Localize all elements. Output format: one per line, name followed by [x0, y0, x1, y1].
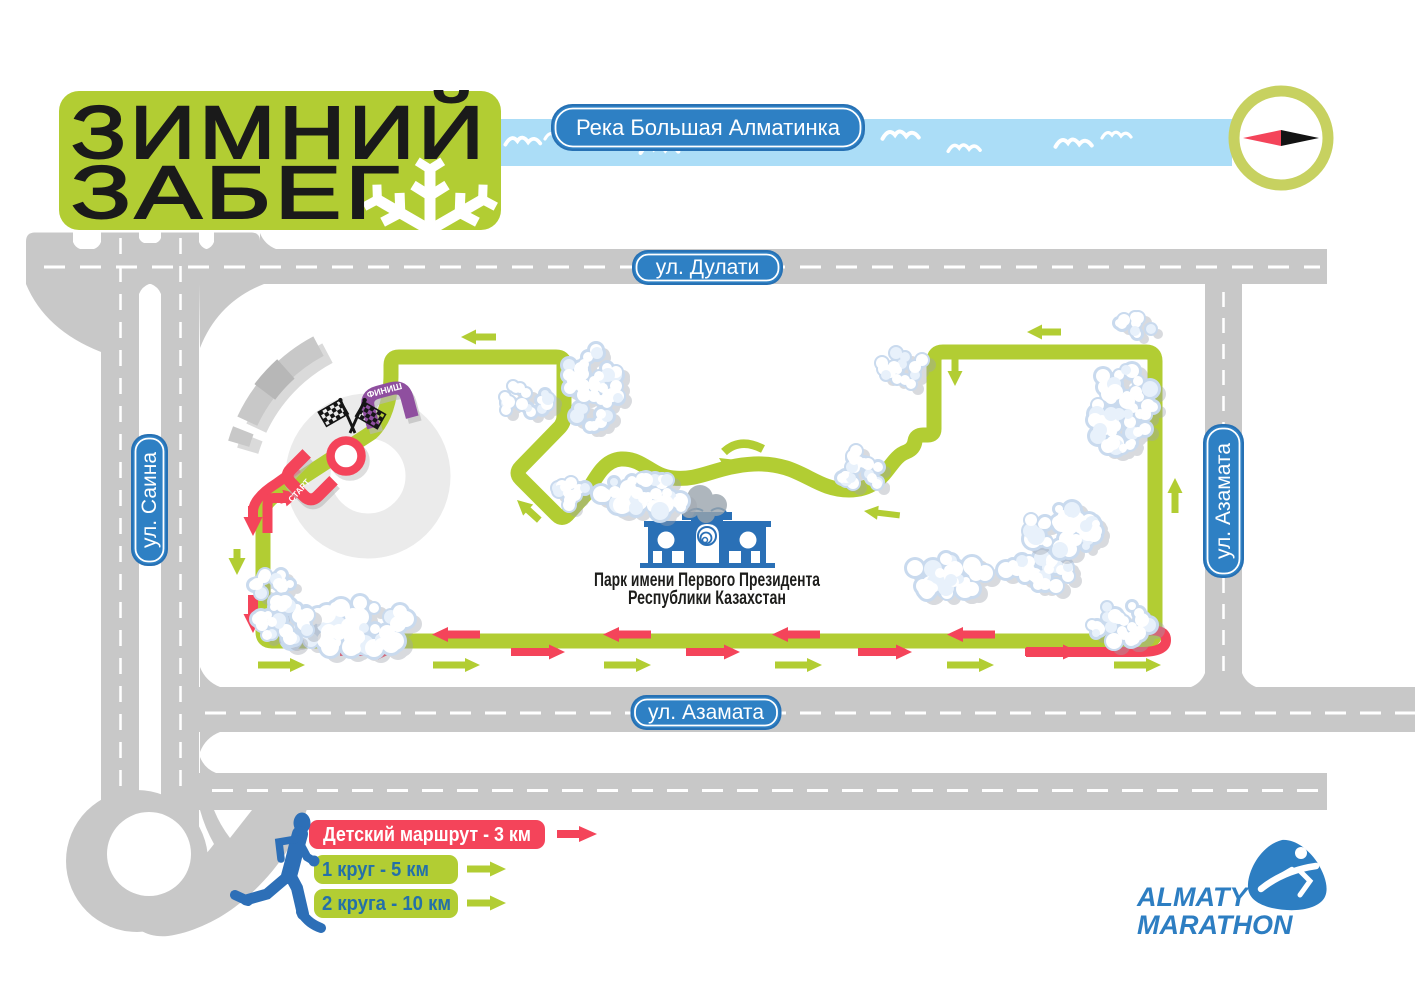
svg-text:Республики Казахстан: Республики Казахстан [628, 588, 786, 609]
svg-text:MARATHON: MARATHON [1137, 910, 1293, 940]
svg-text:2 круга - 10 км: 2 круга - 10 км [322, 893, 451, 915]
svg-text:ЗАБЕГ: ЗАБЕГ [71, 151, 403, 234]
svg-text:Река Большая Алматинка: Река Большая Алматинка [576, 115, 841, 140]
svg-text:ул. Азамата: ул. Азамата [648, 701, 764, 724]
svg-text:ул. Дулати: ул. Дулати [656, 256, 760, 279]
svg-text:ул. Саина: ул. Саина [138, 452, 161, 548]
svg-text:Детский маршрут - 3 км: Детский маршрут - 3 км [323, 824, 531, 846]
svg-text:ул. Азамата: ул. Азамата [1212, 443, 1235, 559]
svg-text:ALMATY: ALMATY [1136, 882, 1250, 912]
svg-text:1 круг - 5 км: 1 круг - 5 км [322, 859, 429, 881]
